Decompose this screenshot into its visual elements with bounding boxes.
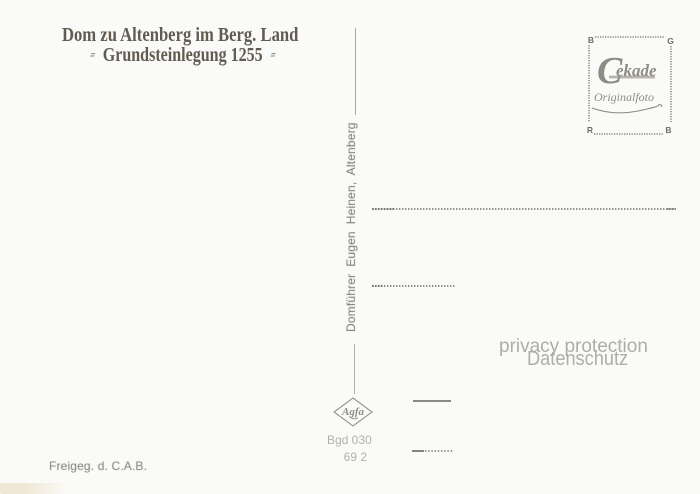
svg-text:B: B (665, 125, 671, 135)
svg-text:Agfa: Agfa (341, 406, 365, 418)
svg-text:B: B (588, 35, 594, 45)
svg-text:G: G (667, 36, 674, 46)
svg-text:R: R (587, 125, 593, 135)
svg-text:ekade: ekade (616, 61, 657, 80)
svg-text:Originalfoto: Originalfoto (594, 90, 654, 104)
